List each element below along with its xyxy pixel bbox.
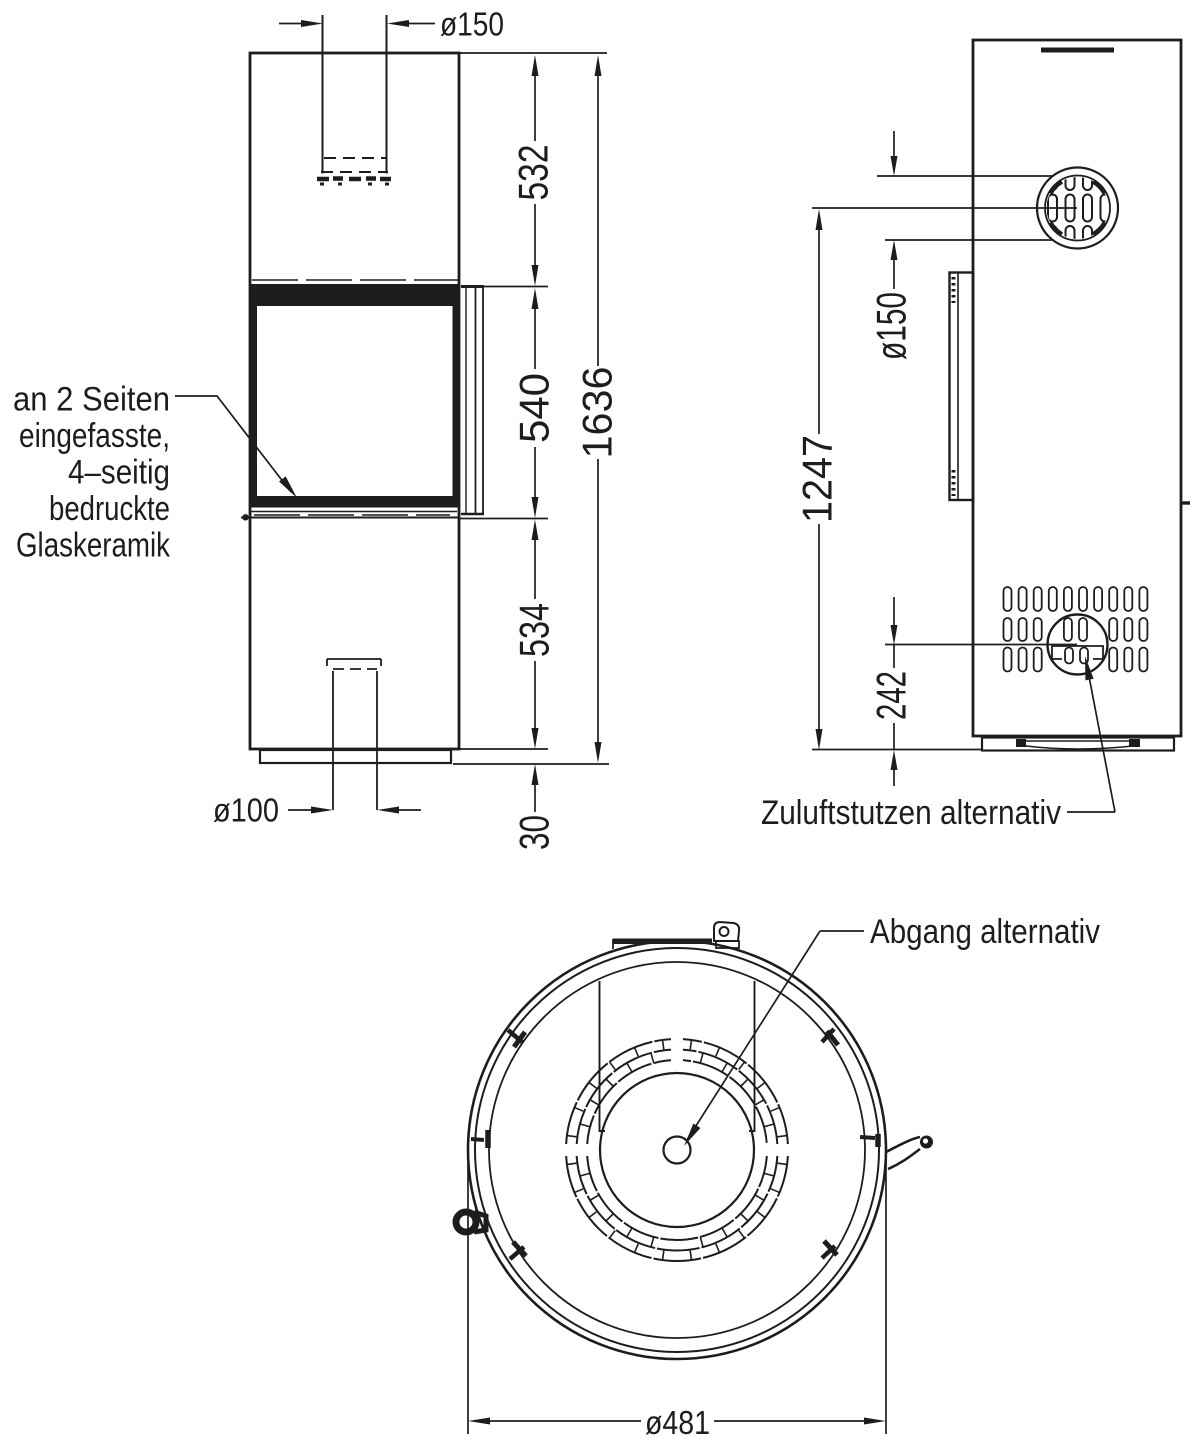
svg-text:ø100: ø100 — [213, 792, 279, 829]
svg-text:ø481: ø481 — [645, 1404, 710, 1441]
svg-text:4–seitig: 4–seitig — [68, 454, 170, 492]
svg-text:30: 30 — [511, 815, 558, 850]
svg-text:534: 534 — [511, 603, 558, 657]
svg-text:1636: 1636 — [574, 367, 621, 459]
svg-text:540: 540 — [511, 373, 558, 443]
svg-text:eingefasste,: eingefasste, — [19, 417, 170, 455]
svg-text:532: 532 — [510, 145, 557, 201]
svg-text:ø150: ø150 — [868, 292, 915, 360]
svg-text:Glaskeramik: Glaskeramik — [16, 527, 171, 565]
svg-text:242: 242 — [868, 671, 915, 720]
svg-text:ø150: ø150 — [440, 6, 504, 43]
svg-text:an 2 Seiten: an 2 Seiten — [13, 381, 170, 419]
svg-text:Abgang alternativ: Abgang alternativ — [870, 913, 1100, 951]
svg-text:1247: 1247 — [794, 435, 841, 523]
svg-text:bedruckte: bedruckte — [49, 490, 170, 528]
svg-text:Zuluftstutzen alternativ: Zuluftstutzen alternativ — [761, 794, 1061, 832]
